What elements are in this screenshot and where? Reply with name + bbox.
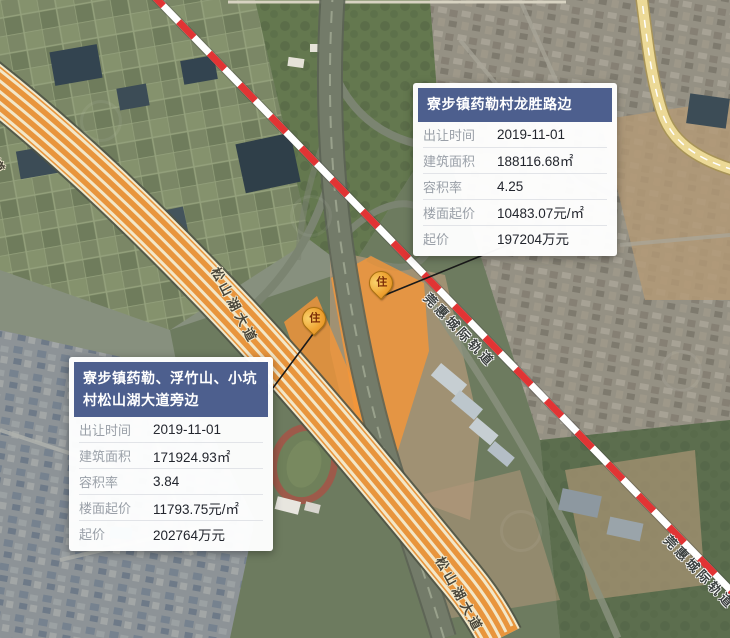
field-value: 202764万元 — [153, 524, 225, 544]
field-value: 2019-11-01 — [497, 127, 565, 142]
card-body: 出让时间 2019-11-01 建筑面积 188116.68㎡ 容积率 4.25… — [418, 122, 612, 251]
card-row: 楼面起价 11793.75元/㎡ — [79, 495, 263, 521]
card-title: 寮步镇药勒村龙胜路边 — [418, 88, 612, 122]
residential-pin-longsheng[interactable]: 住 — [369, 271, 391, 293]
card-row: 建筑面积 188116.68㎡ — [423, 148, 607, 174]
card-row: 出让时间 2019-11-01 — [423, 122, 607, 148]
residential-pin-songshanlake[interactable]: 住 — [302, 307, 324, 329]
card-body: 出让时间 2019-11-01 建筑面积 171924.93㎡ 容积率 3.84… — [74, 417, 268, 546]
card-title: 寮步镇药勒、浮竹山、小坑村松山湖大道旁边 — [74, 362, 268, 417]
land-parcel-card-longsheng[interactable]: 寮步镇药勒村龙胜路边 出让时间 2019-11-01 建筑面积 188116.6… — [413, 83, 617, 256]
field-label: 楼面起价 — [423, 203, 497, 222]
field-value: 171924.93㎡ — [153, 446, 230, 466]
field-label: 出让时间 — [79, 420, 153, 439]
field-value: 3.84 — [153, 474, 179, 489]
card-row: 建筑面积 171924.93㎡ — [79, 443, 263, 469]
card-row: 楼面起价 10483.07元/㎡ — [423, 200, 607, 226]
card-row: 起价 202764万元 — [79, 521, 263, 546]
pin-label: 住 — [376, 278, 387, 289]
field-value: 10483.07元/㎡ — [497, 202, 584, 222]
field-value: 11793.75元/㎡ — [153, 498, 239, 518]
card-row: 容积率 3.84 — [79, 469, 263, 495]
land-parcel-card-songshanlake[interactable]: 寮步镇药勒、浮竹山、小坑村松山湖大道旁边 出让时间 2019-11-01 建筑面… — [69, 357, 273, 551]
field-value: 2019-11-01 — [153, 422, 221, 437]
map-viewport[interactable]: 松山湖大道 松山湖大道 松山湖大道 莞惠城际轨道 莞惠城际轨道 住 住 寮步镇药… — [0, 0, 730, 638]
card-row: 出让时间 2019-11-01 — [79, 417, 263, 443]
field-label: 建筑面积 — [79, 446, 153, 465]
pin-label: 住 — [309, 314, 320, 325]
card-row: 容积率 4.25 — [423, 174, 607, 200]
field-label: 起价 — [79, 524, 153, 543]
field-label: 建筑面积 — [423, 151, 497, 170]
card-row: 起价 197204万元 — [423, 226, 607, 251]
field-label: 出让时间 — [423, 125, 497, 144]
field-label: 容积率 — [423, 177, 497, 196]
field-value: 188116.68㎡ — [497, 150, 573, 170]
field-value: 197204万元 — [497, 228, 569, 248]
field-value: 4.25 — [497, 179, 523, 194]
field-label: 容积率 — [79, 472, 153, 491]
field-label: 楼面起价 — [79, 498, 153, 517]
field-label: 起价 — [423, 229, 497, 248]
